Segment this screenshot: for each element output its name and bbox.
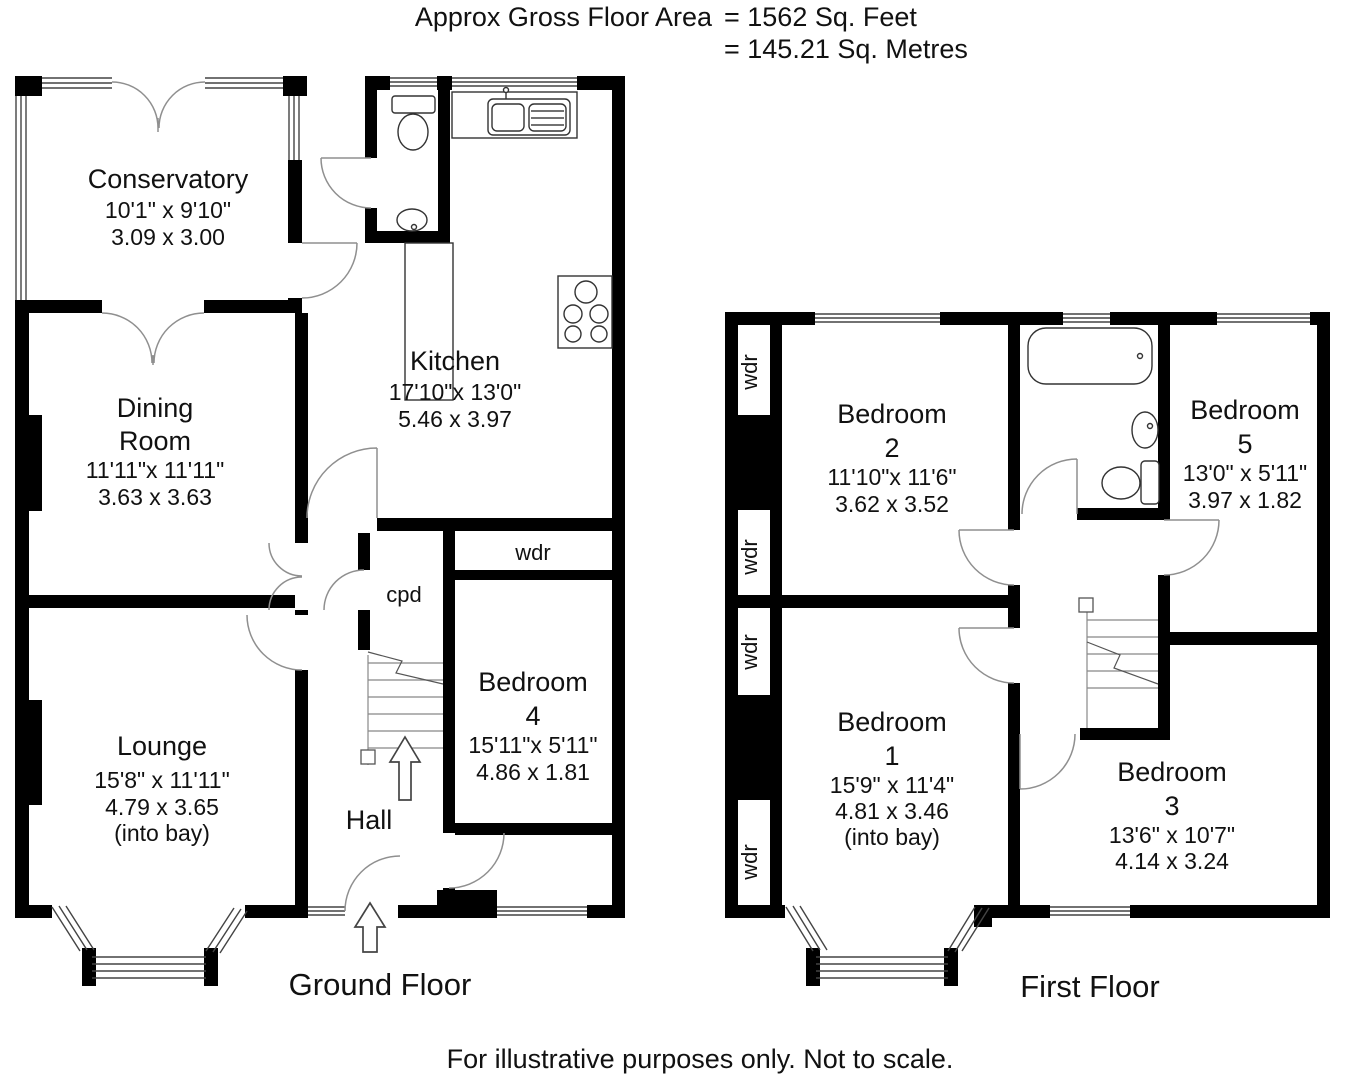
bedroom5-metric: 3.97 x 1.82 [1188,487,1302,513]
hob [558,276,612,348]
bedroom2-name-1: Bedroom [837,399,947,429]
conservatory-name: Conservatory [88,164,249,194]
wdr-label-ground: wdr [514,540,550,565]
wdr-label-4: wdr [737,844,762,880]
gross-floor-area-metres: = 145.21 Sq. Metres [724,34,968,64]
kitchen-counter-side [405,243,453,400]
bedroom2-metric: 3.62 x 3.52 [835,491,949,517]
bedroom1-metric: 4.81 x 3.46 [835,798,949,824]
bedroom4-name-1: Bedroom [478,667,588,697]
bedroom2-imperial: 11'10"x 11'6" [827,464,956,490]
bedroom1-imperial: 15'9" x 11'4" [830,772,954,798]
bedroom1-label: Bedroom 1 15'9" x 11'4" 4.81 x 3.46 (int… [830,707,954,850]
bedroom4-name-2: 4 [525,701,540,731]
dining-name-2: Room [119,426,191,456]
bedroom3-name-1: Bedroom [1117,757,1227,787]
bedroom5-name-1: Bedroom [1190,395,1300,425]
bedroom3-metric: 4.14 x 3.24 [1115,848,1229,874]
kitchen-imperial: 17'10"x 13'0" [389,379,522,405]
bathroom-basin [1132,412,1158,448]
bedroom5-name-2: 5 [1237,429,1252,459]
lounge-label: Lounge 15'8" x 11'11" 4.79 x 3.65 (into … [94,731,230,846]
lounge-metric: 4.79 x 3.65 [105,794,219,820]
conservatory-metric: 3.09 x 3.00 [111,224,225,250]
bath [1028,328,1152,384]
wc-basin [397,209,427,231]
disclaimer-text: For illustrative purposes only. Not to s… [447,1044,954,1074]
conservatory-imperial: 10'1" x 9'10" [105,197,231,223]
bedroom1-note: (into bay) [844,824,940,850]
dining-name-1: Dining [117,393,194,423]
dining-room-label: Dining Room 11'11"x 11'11" 3.63 x 3.63 [86,393,225,510]
lounge-imperial: 15'8" x 11'11" [94,767,230,793]
dining-imperial: 11'11"x 11'11" [86,457,225,483]
first-floor-plan: wdr wdr wdr wdr Bedroom 2 11'10"x 11'6" … [725,312,1330,1004]
first-floor-stairs [1079,598,1158,728]
bedroom2-name-2: 2 [884,433,899,463]
lounge-note: (into bay) [114,820,210,846]
ground-floor-plan: Conservatory 10'1" x 9'10" 3.09 x 3.00 D… [15,76,625,1002]
cpd-label: cpd [386,582,421,607]
bedroom5-imperial: 13'0" x 5'11" [1183,460,1307,486]
gross-floor-area-label: Approx Gross Floor Area [415,2,713,32]
first-floor-title: First Floor [1020,969,1160,1004]
bedroom3-imperial: 13'6" x 10'7" [1109,822,1235,848]
wdr-label-1: wdr [737,354,762,390]
bedroom4-metric: 4.86 x 1.81 [476,759,590,785]
gross-floor-area-feet: = 1562 Sq. Feet [724,2,917,32]
ground-stairs [361,652,443,800]
ground-floor-title: Ground Floor [289,967,472,1002]
floorplan-canvas: Approx Gross Floor Area = 1562 Sq. Feet … [0,0,1345,1080]
bedroom2-label: Bedroom 2 11'10"x 11'6" 3.62 x 3.52 [827,399,956,517]
dining-metric: 3.63 x 3.63 [98,484,212,510]
stairs-up-arrow [390,737,420,800]
wdr-label-3: wdr [737,634,762,670]
bedroom1-name-1: Bedroom [837,707,947,737]
conservatory-label: Conservatory 10'1" x 9'10" 3.09 x 3.00 [88,164,249,250]
wc-toilet [392,96,435,150]
bedroom1-name-2: 1 [884,741,899,771]
hall-label: Hall [346,805,393,835]
bedroom5-label: Bedroom 5 13'0" x 5'11" 3.97 x 1.82 [1183,395,1307,513]
bedroom3-name-2: 3 [1164,791,1179,821]
header: Approx Gross Floor Area = 1562 Sq. Feet … [415,2,968,64]
bathroom-toilet [1102,461,1159,504]
wdr-label-2: wdr [737,539,762,575]
bedroom4-label: Bedroom 4 15'11"x 5'11" 4.86 x 1.81 [468,667,597,785]
entrance-arrow [355,903,385,952]
kitchen-name: Kitchen [410,346,500,376]
lounge-name: Lounge [117,731,207,761]
kitchen-metric: 5.46 x 3.97 [398,406,512,432]
bedroom3-label: Bedroom 3 13'6" x 10'7" 4.14 x 3.24 [1109,757,1235,874]
bedroom4-imperial: 15'11"x 5'11" [468,732,597,758]
